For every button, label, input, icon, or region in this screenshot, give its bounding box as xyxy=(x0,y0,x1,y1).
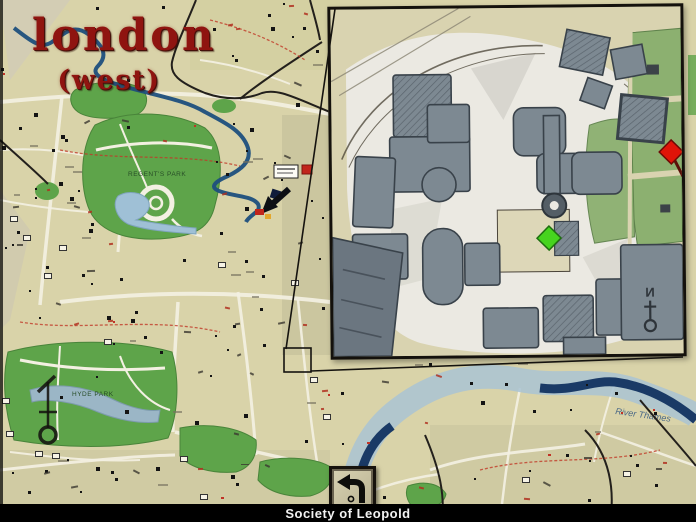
back-arrow-icon xyxy=(334,473,371,507)
zoom-inset-panel: N xyxy=(327,3,686,359)
footer-bar: Society of Leopold xyxy=(0,504,696,522)
title-west: (west) xyxy=(57,67,216,94)
inset-circle-feature xyxy=(542,193,566,217)
inset-compass-n: N xyxy=(645,285,655,300)
location-name-label: Society of Leopold xyxy=(285,506,410,521)
map-left-edge xyxy=(0,0,3,522)
inset-siteplan: N xyxy=(330,6,683,356)
title-london: london xyxy=(32,14,216,58)
map-title: london (west) xyxy=(32,14,216,94)
london-map-screen: River Thames REGENT'S PARK HYDE PARK xyxy=(0,0,696,522)
regents-park-label: REGENT'S PARK xyxy=(128,171,186,178)
hyde-park-label: HYDE PARK xyxy=(72,391,114,398)
